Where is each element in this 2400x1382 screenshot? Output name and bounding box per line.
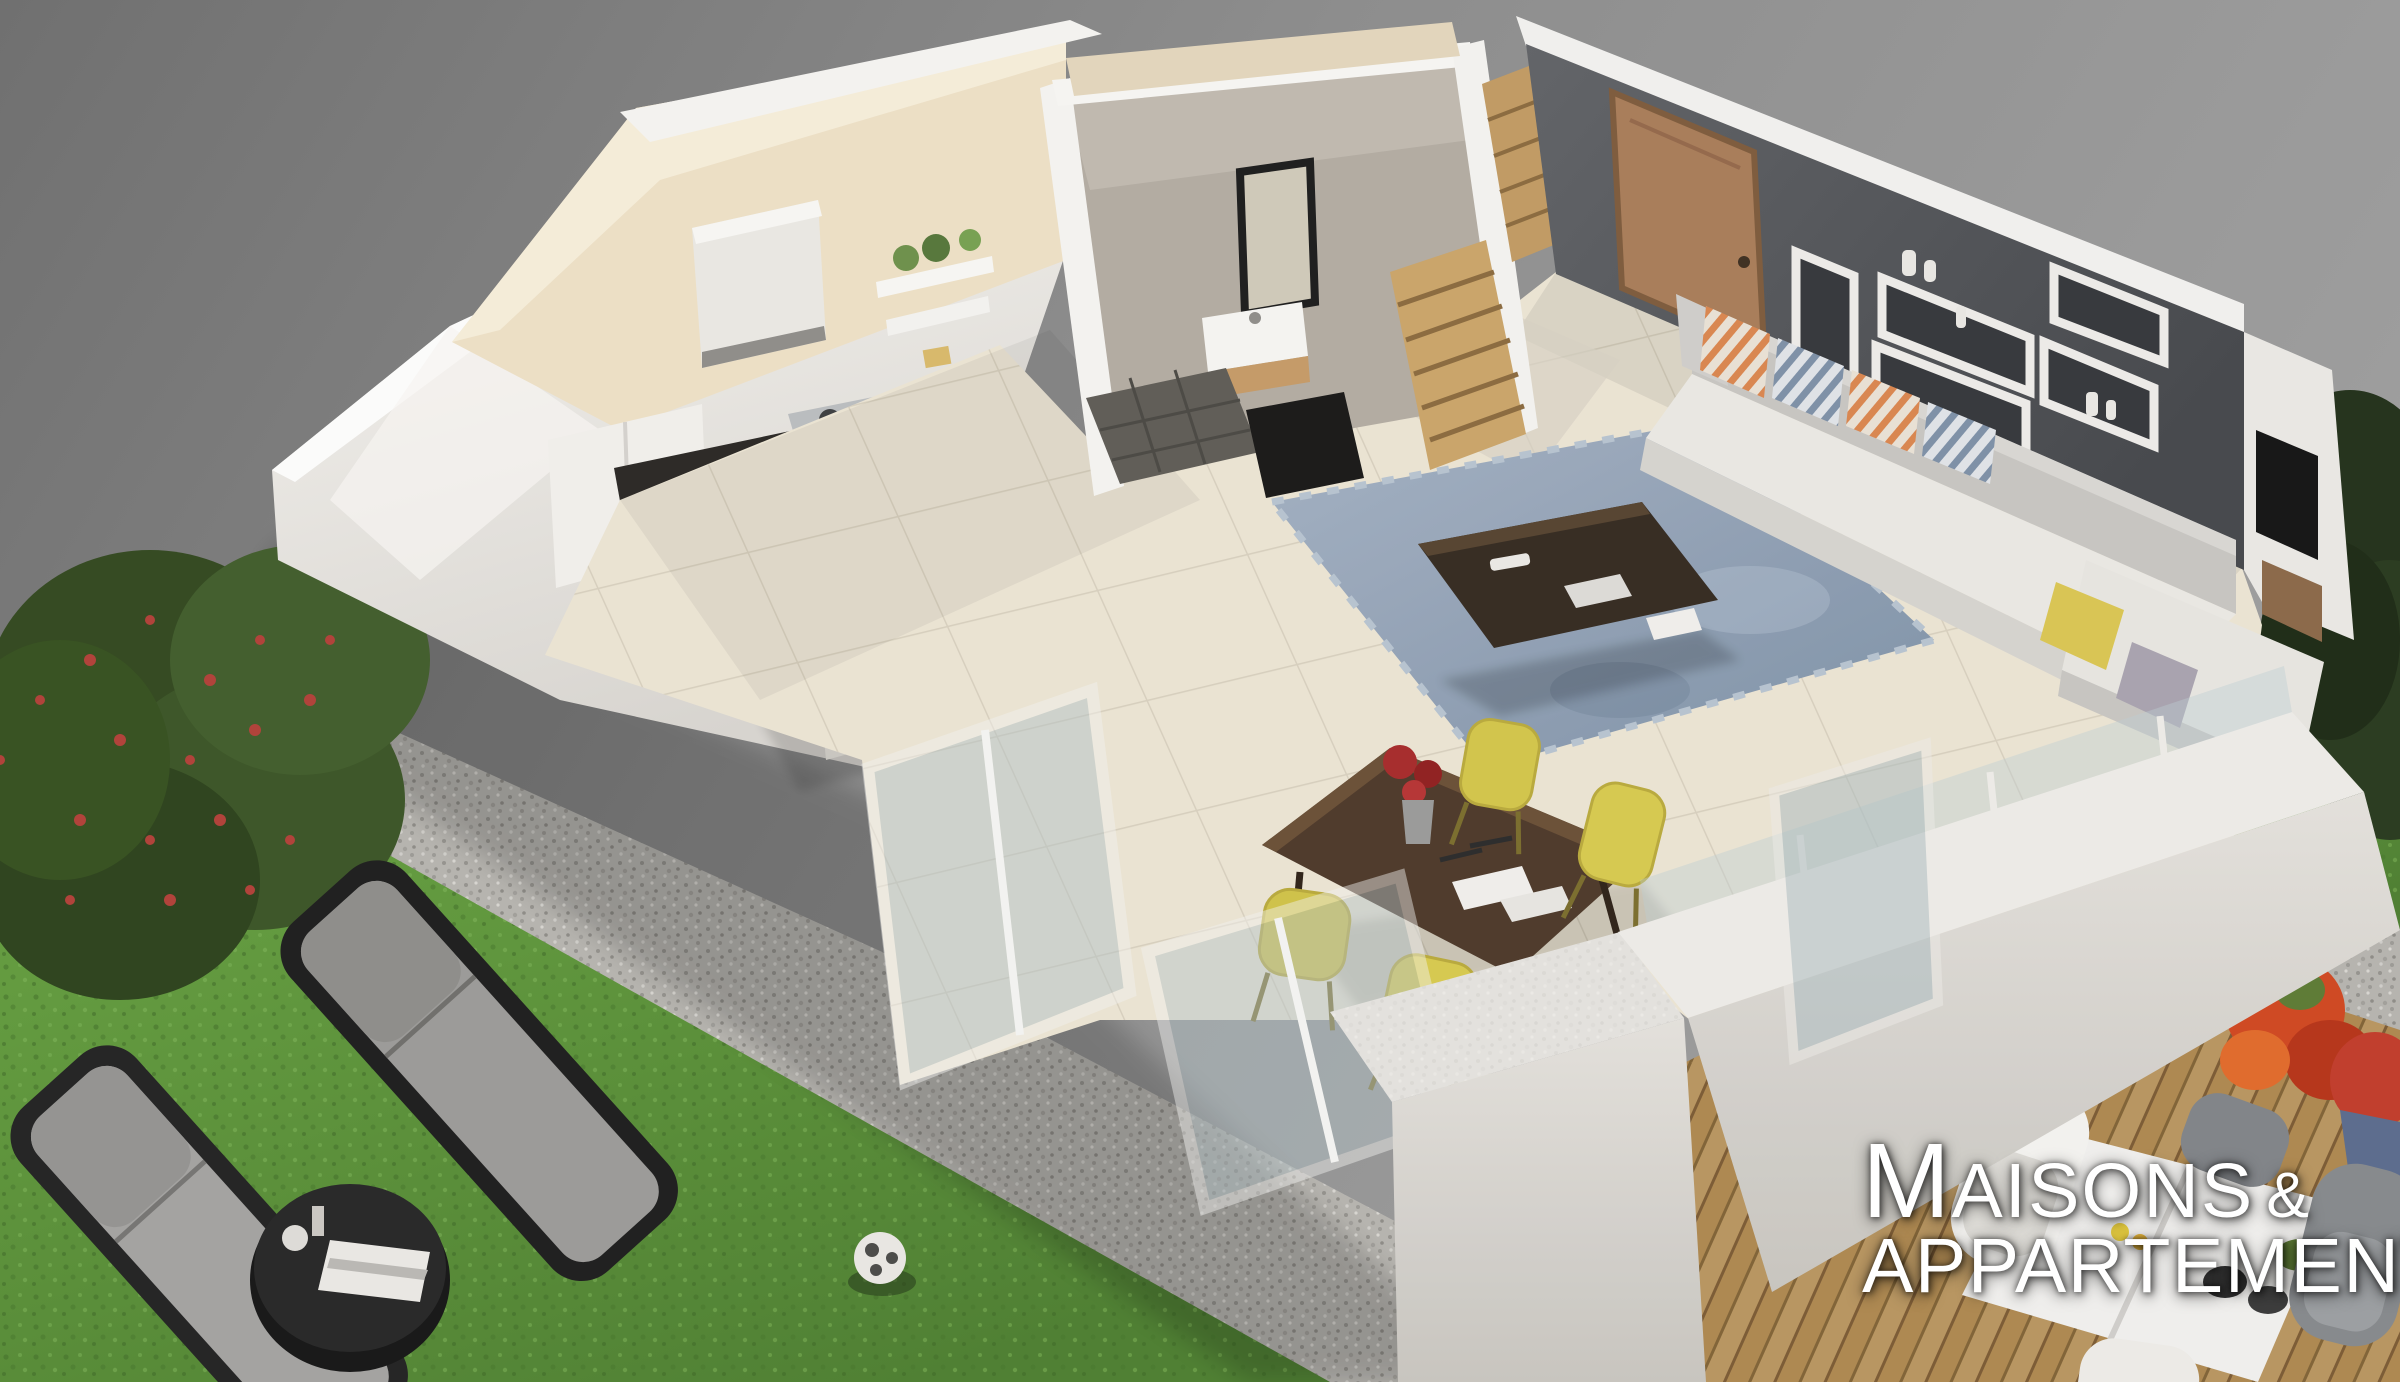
- watermark-line1: MAISONS&: [1862, 1128, 2342, 1234]
- watermark-line2: APPARTEMENTS: [1862, 1228, 2342, 1305]
- render-canvas: MAISONS& APPARTEMENTS: [0, 0, 2400, 1382]
- watermark-ampersand: &: [2266, 1159, 2309, 1231]
- watermark-line1-rest: AISONS: [1951, 1148, 2254, 1234]
- watermark-logo: MAISONS& APPARTEMENTS: [1862, 1128, 2342, 1305]
